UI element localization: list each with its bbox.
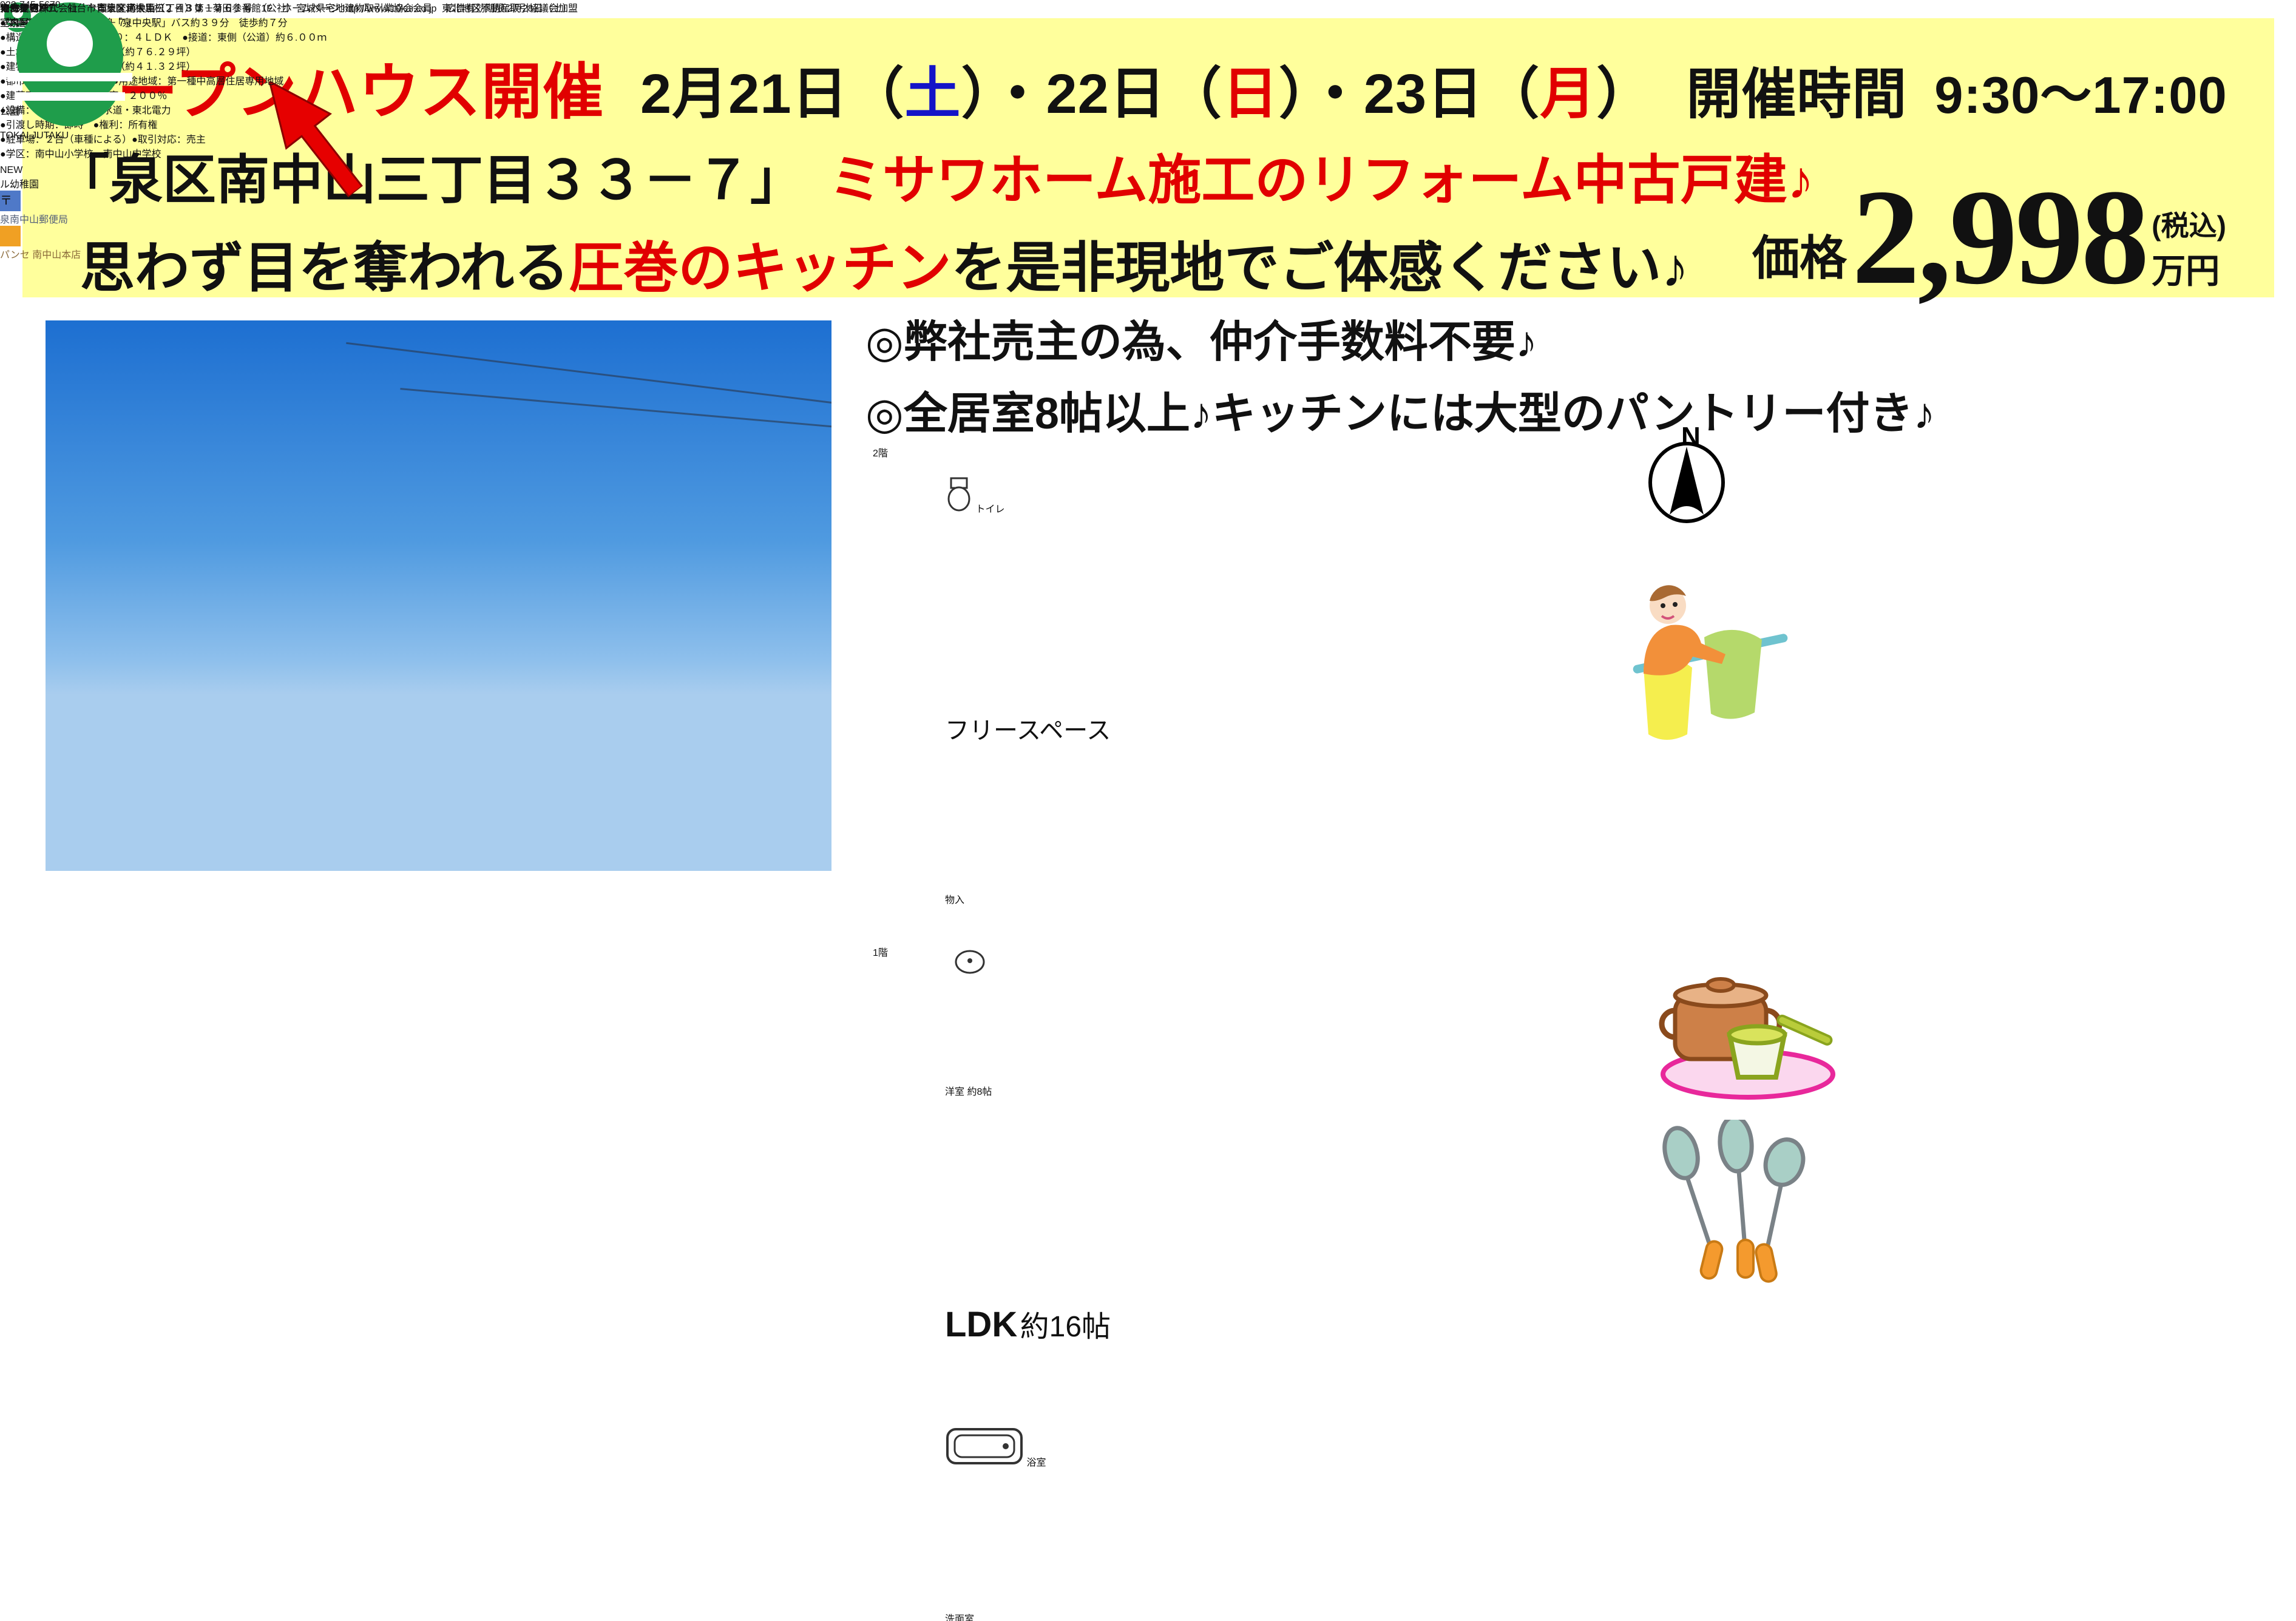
room-freespace-2f: フリースペース: [945, 677, 1148, 892]
room-size: 約16帖: [1020, 1311, 1111, 1343]
date-seg: ）: [1596, 63, 1653, 125]
exterior-photo: [46, 320, 831, 871]
detail-row-school: ●学区：南中山小学校、南中山中学校: [0, 146, 327, 160]
flyer-page: オープンハウス開催2月21日（土）・22日（日）・23日（月）開催時間9:30～…: [0, 0, 2296, 1621]
laundry-lady-illustration: [1625, 558, 1795, 756]
room-washroom-1f: 洗面室: [945, 1611, 1119, 1621]
power-line: [346, 342, 831, 410]
room-label: 物入: [945, 895, 964, 905]
post-office-icon: 〒: [0, 191, 21, 211]
room-label: 洗面室: [945, 1614, 974, 1621]
date-sat: 土: [905, 63, 961, 125]
time-label: 開催時間: [1686, 64, 1907, 125]
event-dates: 2月21日（土）・22日（日）・23日（月）: [640, 63, 1653, 125]
floor1-label: 1階: [873, 944, 888, 959]
room-bath-1f: 浴室: [945, 1427, 1089, 1611]
footer-address: 〒981－0901 仙台市青葉区北根黒松２－３０ 菊田参番館1F ホームページ:…: [0, 0, 572, 15]
appeal-post: を是非現地でご体感ください♪: [952, 238, 1689, 299]
shop-label: パンセ 南中山本店: [0, 246, 85, 261]
price-value: 2,998: [1852, 169, 2147, 305]
floorplan-1f: LDK 約16帖 浴室 洗面室 洗濯機置場 冷蔵庫置場 カップボード パントリー…: [945, 942, 1599, 1427]
price-label: 価格: [1752, 220, 1847, 305]
post-office-label: 泉南中山郵便局: [0, 211, 85, 226]
entrance-door: [46, 629, 124, 761]
toilet-icon: [945, 477, 973, 512]
room-label: 浴室: [1026, 1458, 1046, 1468]
pot-pan-illustration: [1657, 962, 1845, 1108]
price-unit: 万円: [2152, 244, 2226, 293]
window: [46, 486, 93, 552]
window: [46, 408, 117, 486]
tokai-logo-icon: [0, 0, 140, 127]
price-suffix: (税込) 万円: [2152, 204, 2226, 305]
date-seg: 2月21日（: [640, 63, 905, 125]
header-line-3: 思わず目を奪われる圧巻のキッチンを是非現地でご体感ください♪: [80, 223, 1689, 302]
appeal-highlight: 圧巻のキッチン: [569, 238, 952, 299]
logo-caption: TOKAI JUTAKU: [0, 130, 140, 141]
shop-icon: [0, 226, 21, 246]
room-toilet-2f: トイレ: [945, 477, 1030, 677]
time-value: 9:30～17:00: [1934, 67, 2227, 124]
new-house-map-icon: NEW: [0, 165, 85, 176]
date-mon: 月: [1540, 63, 1596, 125]
room-ldk-1f: LDK 約16帖: [945, 942, 1194, 1427]
catch-copy: ミサワホーム施工のリフォーム中古戸建♪: [829, 150, 1814, 210]
compass-icon: N: [1646, 425, 1728, 528]
appeal-pre: 思わず目を奪われる: [80, 238, 569, 299]
kindergarten-label: ル幼稚園: [0, 176, 85, 191]
utensils-illustration: [1654, 1120, 1824, 1287]
window: [46, 320, 101, 408]
bathtub-icon: [945, 1427, 1024, 1466]
floorplan-2f: トイレ フリースペース 物入 洋室 約8帖 物入 バルコニー 物入 物入 洋室 …: [945, 477, 1599, 933]
selling-points: ◎弊社売主の為、仲介手数料不要♪ ◎全居室8帖以上♪キッチンには大型のパントリー…: [865, 306, 2280, 450]
new-badge: NEW: [0, 165, 22, 175]
room-label: LDK: [945, 1305, 1017, 1344]
date-sun: 日: [1222, 63, 1279, 125]
price-tax: (税込): [2152, 204, 2226, 244]
date-seg: ）・22日（: [961, 63, 1222, 125]
washbasin-icon: [953, 949, 986, 975]
company-logo: TOKAI JUTAKU: [0, 0, 140, 141]
price-block: 価格 2,998 (税込) 万円: [1752, 169, 2226, 305]
room-label: トイレ: [975, 504, 1004, 515]
window: [46, 552, 85, 629]
selling-point-1: ◎弊社売主の為、仲介手数料不要♪: [865, 306, 2280, 378]
date-seg: ）・23日（: [1279, 63, 1540, 125]
header-line-1: オープンハウス開催2月21日（土）・22日（日）・23日（月）開催時間9:30～…: [56, 42, 2227, 130]
selling-point-2: ◎全居室8帖以上♪キッチンには大型のパントリー付き♪: [865, 378, 2280, 450]
room-label: フリースペース: [945, 717, 1111, 744]
floor2-label: 2階: [873, 445, 888, 459]
gate-pillar: [46, 761, 147, 871]
